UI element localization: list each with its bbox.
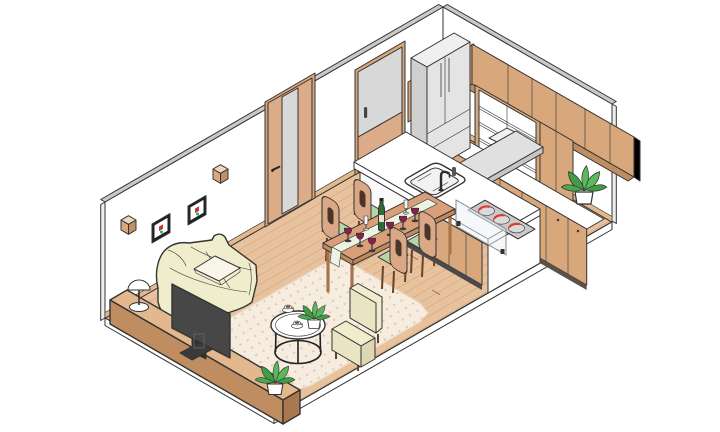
sliding-door-handle xyxy=(364,107,367,118)
back-wall-side-edge xyxy=(101,202,105,321)
soap-pump xyxy=(452,167,456,176)
illustration-canvas xyxy=(0,0,720,432)
wall-cube-shelf-1 xyxy=(121,216,136,235)
wall-cube-shelf-2 xyxy=(213,165,228,184)
isometric-room-illustration xyxy=(0,0,720,432)
door-glass-strip xyxy=(282,88,298,214)
